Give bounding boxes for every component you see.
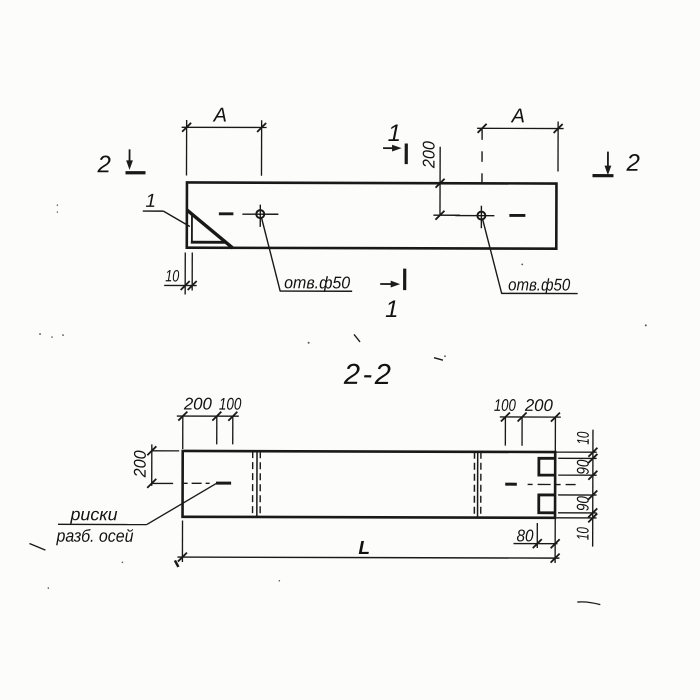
svg-text:риски: риски	[69, 504, 117, 524]
svg-text:10: 10	[574, 431, 593, 444]
svg-text:А: А	[511, 105, 525, 127]
svg-text:2-2: 2-2	[343, 359, 391, 391]
svg-text:90: 90	[574, 459, 593, 474]
svg-text:2: 2	[96, 151, 110, 178]
svg-text:1: 1	[388, 120, 401, 147]
svg-text:1: 1	[385, 296, 398, 323]
svg-text:10: 10	[165, 267, 180, 285]
svg-text:10: 10	[573, 527, 592, 540]
svg-text:200: 200	[420, 141, 439, 170]
svg-text:80: 80	[516, 526, 534, 545]
svg-text:L: L	[358, 538, 370, 559]
svg-text:отв.ф50: отв.ф50	[284, 273, 351, 292]
svg-text:100: 100	[219, 395, 242, 414]
svg-text:200: 200	[131, 450, 150, 479]
svg-text:разб. осей: разб. осей	[56, 526, 134, 546]
svg-text:200: 200	[183, 394, 213, 413]
svg-text:2: 2	[625, 150, 639, 177]
svg-text:1: 1	[145, 191, 156, 212]
svg-text:200: 200	[524, 396, 554, 415]
svg-text:100: 100	[494, 396, 516, 415]
svg-text:отв.ф50: отв.ф50	[508, 275, 571, 294]
svg-text:90: 90	[574, 496, 593, 511]
svg-text:А: А	[213, 105, 227, 127]
